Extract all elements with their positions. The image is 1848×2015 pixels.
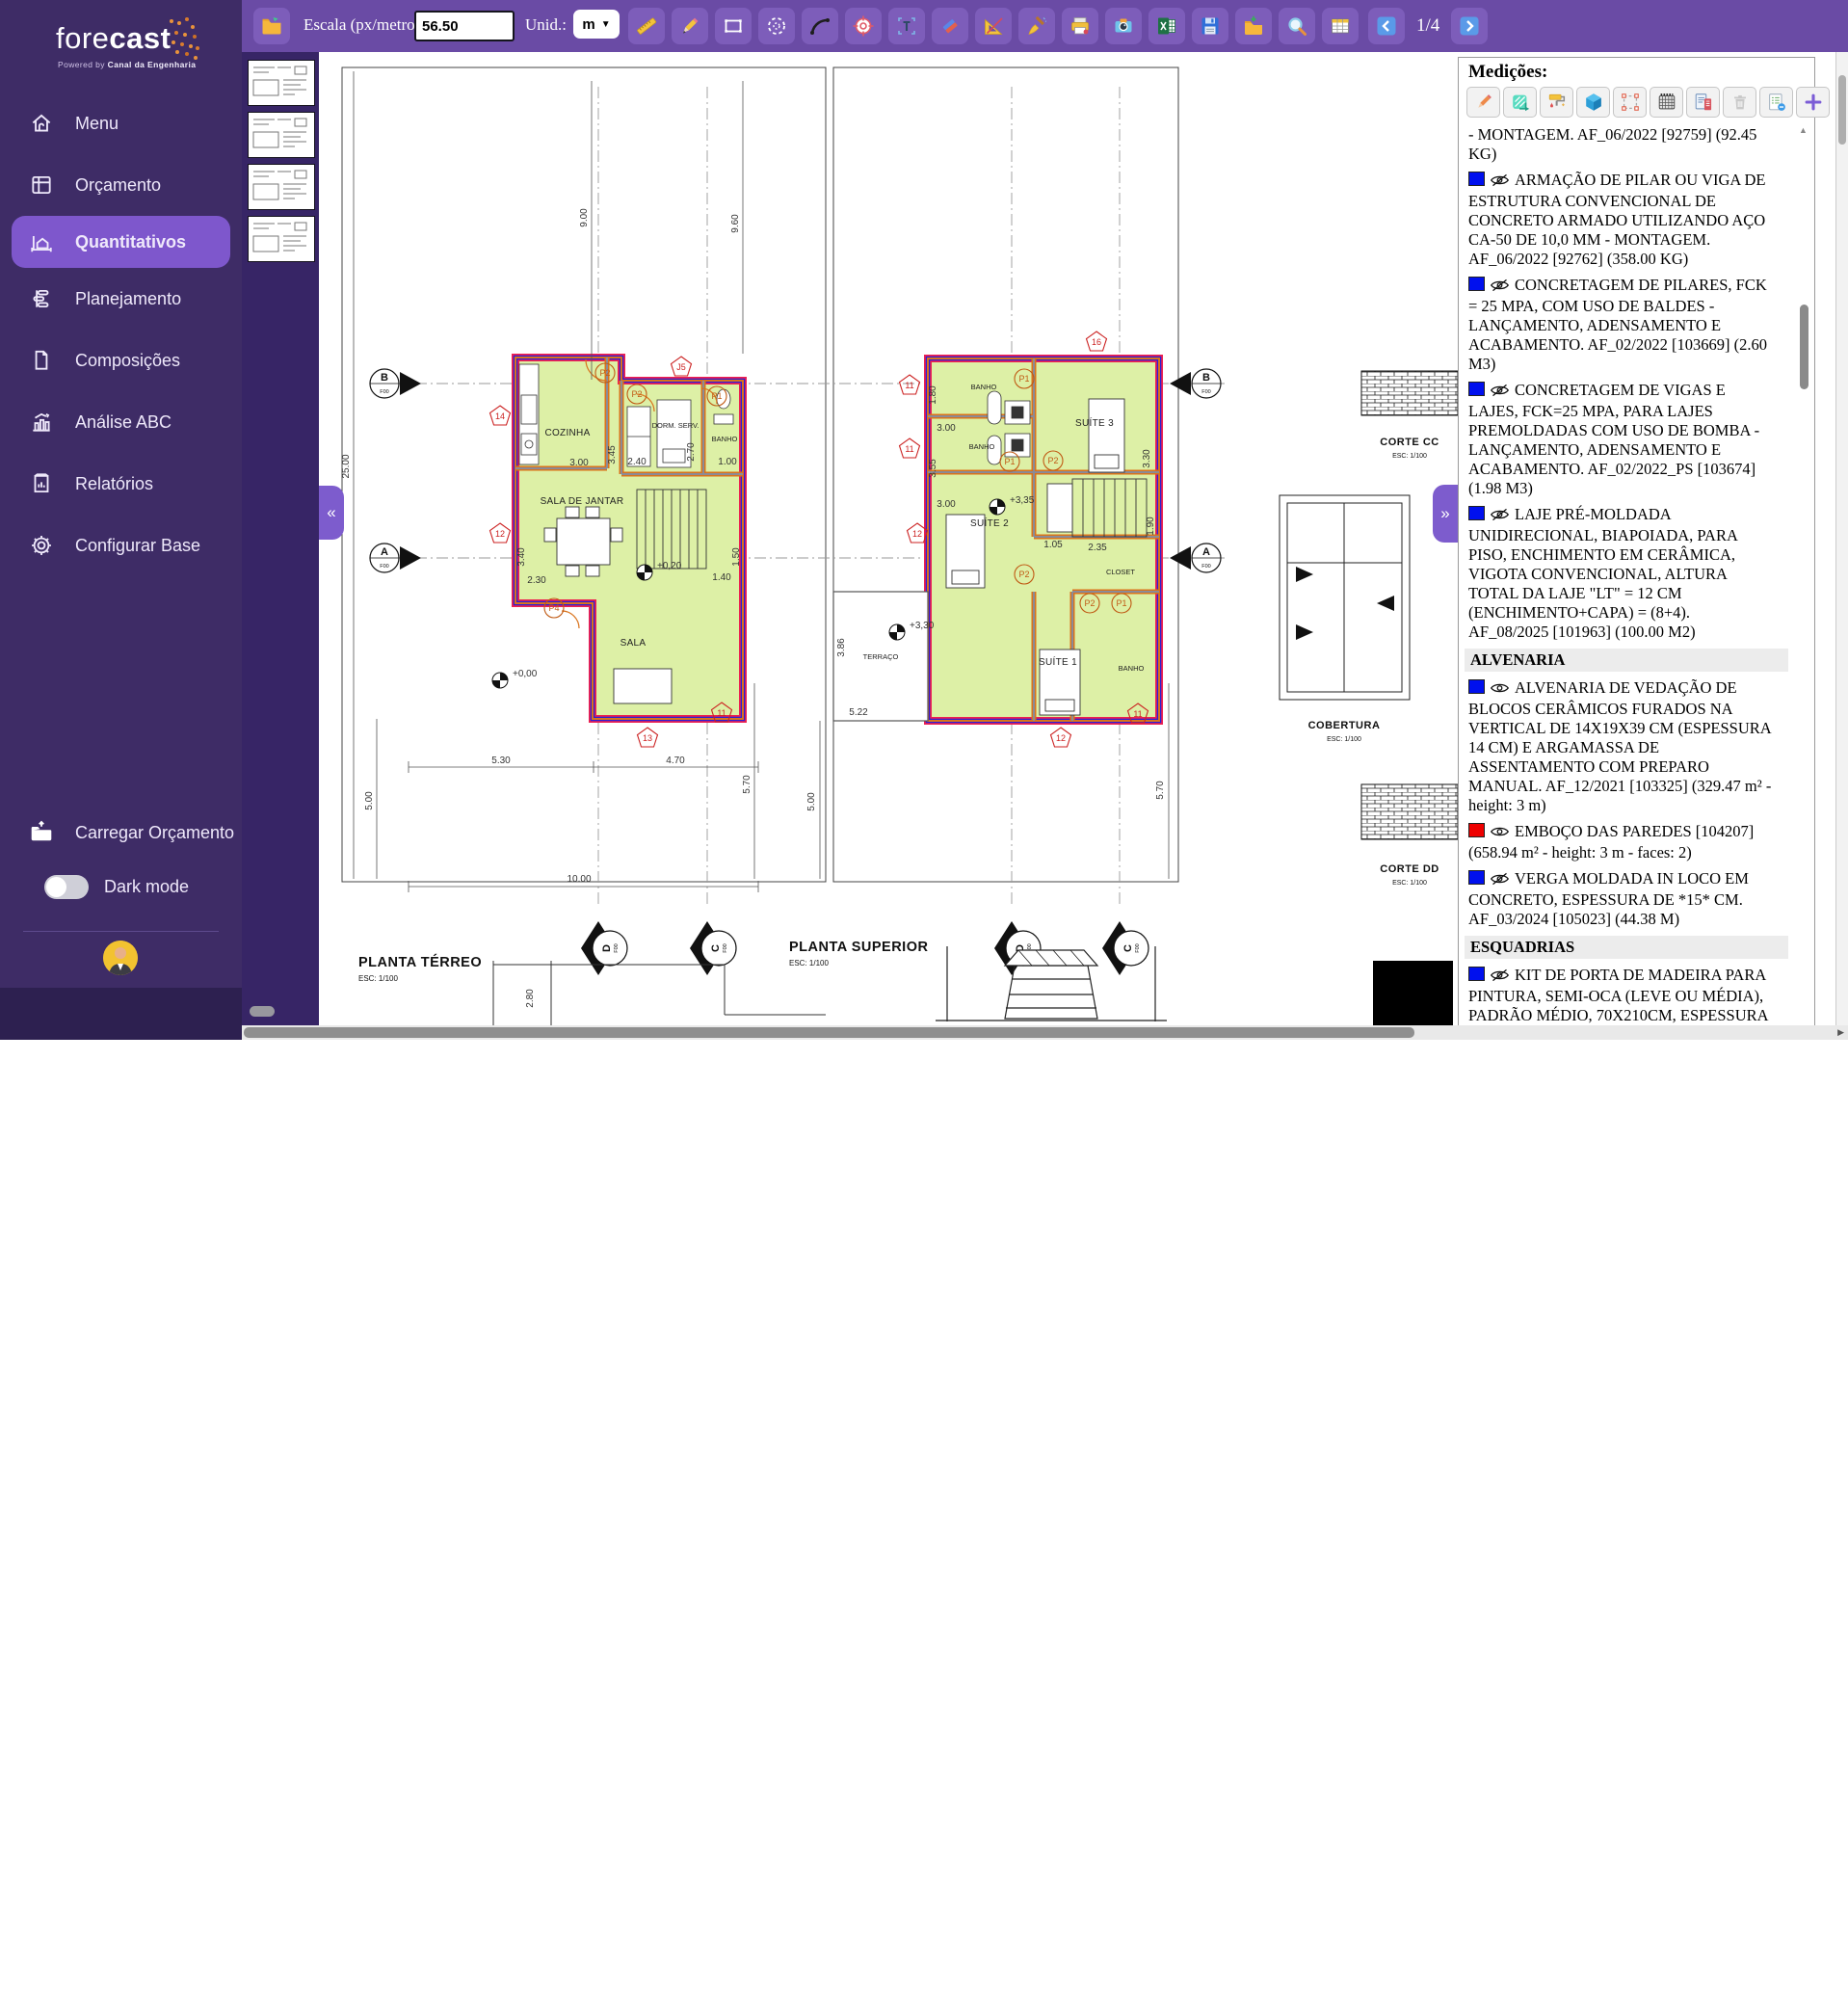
room-label: BANHO bbox=[712, 435, 738, 443]
logo-dots-decoration bbox=[170, 19, 173, 23]
sidebar-item-or-amento[interactable]: Orçamento bbox=[0, 154, 242, 216]
collapse-panel-button[interactable]: » bbox=[1433, 485, 1458, 543]
sidebar-item-label: Composições bbox=[75, 351, 180, 371]
rect-select-button[interactable] bbox=[715, 8, 752, 44]
window-tag: J5 bbox=[676, 362, 686, 372]
dim-label: 5.70 bbox=[1155, 781, 1166, 800]
broom-icon bbox=[1025, 14, 1048, 38]
window-tag: 16 bbox=[1092, 337, 1101, 347]
page-thumbnail-4[interactable] bbox=[248, 216, 315, 262]
eye-visible-icon[interactable] bbox=[1490, 824, 1510, 843]
axis-label: D bbox=[601, 944, 613, 952]
panel-title: Medições: bbox=[1468, 62, 1547, 83]
measurement-color-chip bbox=[1468, 382, 1485, 396]
dim-label: 3.00 bbox=[937, 423, 956, 434]
save-button[interactable] bbox=[1192, 8, 1228, 44]
black-block bbox=[1373, 961, 1453, 1025]
avatar-image bbox=[103, 941, 138, 975]
printer-icon bbox=[1069, 14, 1092, 38]
trash-icon bbox=[1729, 92, 1751, 113]
measurement-item[interactable]: EMBOÇO DAS PAREDES [104207] (658.94 m² -… bbox=[1468, 822, 1773, 862]
broom-button[interactable] bbox=[1018, 8, 1055, 44]
axis-sublabel: F00 bbox=[380, 389, 388, 395]
sidebar-item-label: Orçamento bbox=[75, 175, 161, 196]
window-tag: 11 bbox=[717, 708, 726, 718]
axis-label: B bbox=[1202, 372, 1210, 384]
level-label: +0,20 bbox=[657, 561, 682, 571]
measurement-color-chip bbox=[1468, 172, 1485, 186]
axis-sublabel: F00 bbox=[1201, 564, 1210, 570]
measurement-text: LAJE PRÉ-MOLDADA UNIDIRECIONAL, BIAPOIAD… bbox=[1468, 505, 1737, 641]
toolbar-tools bbox=[628, 0, 1359, 44]
dim-label: 5.22 bbox=[849, 707, 868, 718]
arrow-right-icon bbox=[1458, 14, 1481, 38]
page-navigation: 1/4 bbox=[1368, 0, 1488, 44]
pencil-button[interactable] bbox=[672, 8, 708, 44]
measurement-text: CONCRETAGEM DE VIGAS E LAJES, FCK=25 MPA… bbox=[1468, 381, 1759, 497]
ruler-icon bbox=[635, 14, 658, 38]
dim-label: 1.40 bbox=[712, 572, 731, 583]
measurement-color-chip bbox=[1468, 679, 1485, 694]
measurement-color-chip bbox=[1468, 823, 1485, 837]
compositions-icon bbox=[29, 348, 54, 373]
window-tag: 11 bbox=[905, 381, 913, 390]
sidebar-load-budget-container: Carregar Orçamento bbox=[0, 802, 242, 863]
scrollbar-thumb[interactable] bbox=[1800, 305, 1808, 389]
table-button[interactable] bbox=[1322, 8, 1359, 44]
door-tag: P2 bbox=[1018, 570, 1029, 579]
planning-icon bbox=[29, 286, 54, 311]
window-tag: 12 bbox=[495, 529, 505, 539]
plan-scale: ESC: 1/100 bbox=[358, 974, 398, 983]
user-avatar[interactable] bbox=[103, 941, 138, 975]
unit-value: m bbox=[582, 16, 594, 33]
axis-label: A bbox=[1202, 546, 1210, 558]
add-button[interactable] bbox=[1796, 87, 1830, 118]
canvas-sliver bbox=[1815, 57, 1835, 1025]
measurement-color-chip bbox=[1468, 870, 1485, 885]
dim-label: 1.00 bbox=[718, 457, 737, 467]
area-button[interactable] bbox=[1503, 87, 1537, 118]
dark-mode-toggle[interactable] bbox=[44, 875, 89, 899]
window-tag: 12 bbox=[1056, 733, 1066, 743]
scale-label: Escala (px/metro): bbox=[304, 15, 425, 35]
printer-button[interactable] bbox=[1062, 8, 1098, 44]
dim-label: 2.30 bbox=[527, 575, 546, 586]
measurement-item[interactable]: LAJE PRÉ-MOLDADA UNIDIRECIONAL, BIAPOIAD… bbox=[1468, 505, 1773, 642]
room-label: SUÍTE 1 bbox=[1039, 655, 1077, 668]
room-label: SALA bbox=[620, 638, 647, 649]
measurement-item[interactable]: CONCRETAGEM DE PILARES, FCK = 25 MPA, CO… bbox=[1468, 276, 1773, 374]
dark-mode-label: Dark mode bbox=[104, 877, 189, 897]
measurement-text: ARMAÇÃO DE PILAR OU VIGA DE ESTRUTURA CO… bbox=[1468, 171, 1766, 268]
axis-sublabel: F00 bbox=[723, 943, 728, 952]
plan-scale: ESC: 1/100 bbox=[789, 959, 829, 968]
detail-title: COBERTURA bbox=[1308, 720, 1381, 731]
dim-label: 25.00 bbox=[341, 454, 352, 478]
dim-label: 3.86 bbox=[836, 638, 847, 657]
collapse-sidebar-icon[interactable]: ‹ bbox=[21, 1988, 29, 2015]
measurement-text: EMBOÇO DAS PAREDES [104207] (658.94 m² -… bbox=[1468, 822, 1754, 862]
set-square-button[interactable] bbox=[975, 8, 1012, 44]
axis-sublabel: F00 bbox=[1201, 389, 1210, 395]
page-thumbnails-strip bbox=[242, 52, 319, 1025]
pencil-icon bbox=[678, 14, 701, 38]
door-tag: P1 bbox=[1116, 598, 1126, 608]
scroll-right-icon[interactable]: ▶ bbox=[1837, 1027, 1844, 1038]
axis-sublabel: F00 bbox=[614, 943, 620, 952]
volume-button[interactable] bbox=[1576, 87, 1610, 118]
sidebar-item-an-lise-abc[interactable]: Análise ABC bbox=[0, 391, 242, 453]
text-tool-button[interactable] bbox=[888, 8, 925, 44]
scrollbar-thumb[interactable] bbox=[1838, 75, 1846, 145]
axis-sublabel: F00 bbox=[1135, 943, 1141, 952]
unit-label: Unid.: bbox=[525, 15, 567, 35]
curve-icon bbox=[808, 14, 832, 38]
dim-label: 2.40 bbox=[627, 457, 647, 467]
ruler-button[interactable] bbox=[628, 8, 665, 44]
measurement-color-chip bbox=[1468, 967, 1485, 981]
dim-label: 5.00 bbox=[806, 792, 817, 811]
sidebar-item-quantitativos[interactable]: Quantitativos bbox=[12, 216, 230, 268]
measurement-item[interactable]: ALVENARIA DE VEDAÇÃO DE BLOCOS CERÂMICOS… bbox=[1468, 678, 1773, 815]
room-label: TERRAÇO bbox=[863, 652, 899, 661]
eye-hidden-icon[interactable] bbox=[1490, 172, 1510, 192]
window-tag: 11 bbox=[905, 444, 913, 454]
sidebar-bottom-bar: ‹ bbox=[0, 988, 242, 1040]
axis-label: C bbox=[1122, 944, 1134, 952]
door-tag: P1 bbox=[1018, 374, 1029, 384]
scroll-up-icon[interactable]: ▲ bbox=[1799, 125, 1808, 135]
measurement-item[interactable]: CONCRETAGEM DE VIGAS E LAJES, FCK=25 MPA… bbox=[1468, 381, 1773, 498]
zoom-icon bbox=[1285, 14, 1308, 38]
room-label: SUÍTE 2 bbox=[970, 517, 1009, 529]
room-label: SALA DE JANTAR bbox=[541, 496, 624, 507]
room-label: BANHO bbox=[1119, 664, 1145, 673]
dim-label: 3.45 bbox=[607, 445, 618, 464]
eye-hidden-icon[interactable] bbox=[1490, 871, 1510, 890]
sidebar-item-label: Relatórios bbox=[75, 474, 153, 494]
paint-roller-button[interactable] bbox=[1540, 87, 1573, 118]
load-budget-button[interactable]: Carregar Orçamento bbox=[0, 802, 242, 863]
plan-title: PLANTA TÉRREO bbox=[358, 954, 482, 970]
count-grid-icon bbox=[1656, 92, 1677, 113]
eraser-icon bbox=[938, 14, 962, 38]
camera-button[interactable] bbox=[1105, 8, 1142, 44]
select-region-button[interactable] bbox=[1613, 87, 1647, 118]
ellipse-select-button[interactable] bbox=[758, 8, 795, 44]
plan-title: PLANTA SUPERIOR bbox=[789, 940, 928, 955]
budget-icon bbox=[29, 172, 54, 198]
room-label: CLOSET bbox=[1106, 568, 1135, 576]
axis-sublabel: F00 bbox=[380, 564, 388, 570]
logo-tagline: Powered by Canal da Engenharia bbox=[58, 60, 196, 69]
axis-label: A bbox=[381, 546, 388, 558]
import-folder-button[interactable] bbox=[1235, 8, 1272, 44]
detail-scale: ESC: 1/100 bbox=[1327, 736, 1361, 743]
dim-label: 2.80 bbox=[525, 989, 536, 1008]
rect-select-icon bbox=[722, 14, 745, 38]
dim-label: 5.70 bbox=[742, 775, 752, 794]
excel-export-icon bbox=[1155, 14, 1178, 38]
page-thumbnail-3[interactable] bbox=[248, 164, 315, 210]
axis-label: B bbox=[381, 372, 388, 384]
room-label: BANHO bbox=[969, 442, 995, 451]
list-scrollbar[interactable]: ▲ ▼ bbox=[1798, 125, 1811, 1035]
excel-export-button[interactable] bbox=[1148, 8, 1185, 44]
room-label: BANHO bbox=[971, 383, 997, 391]
door-tag: P2 bbox=[631, 389, 642, 399]
target-button[interactable] bbox=[845, 8, 882, 44]
sidebar-item-composi-es[interactable]: Composições bbox=[0, 330, 242, 391]
camera-icon bbox=[1112, 14, 1135, 38]
top-toolbar: Escala (px/metro): Unid.: m ▼ 1/4 bbox=[242, 0, 1848, 52]
canvas-pill bbox=[250, 1006, 275, 1017]
measurement-color-chip bbox=[1468, 506, 1485, 520]
window-tag: 13 bbox=[643, 733, 652, 743]
eye-hidden-icon[interactable] bbox=[1490, 383, 1510, 402]
measurement-text: VERGA MOLDADA IN LOCO EM CONCRETO, ESPES… bbox=[1468, 869, 1749, 928]
sidebar-item-configurar-base[interactable]: Configurar Base bbox=[0, 515, 242, 576]
room-label: DORM. SERV. bbox=[652, 421, 700, 430]
door-tag: P4 bbox=[548, 603, 559, 613]
window-tag: 12 bbox=[912, 529, 922, 539]
page-thumbnail-1[interactable] bbox=[248, 60, 315, 106]
add-icon bbox=[1803, 92, 1824, 113]
dim-label: 1.05 bbox=[1043, 540, 1063, 550]
app-logo: forecast bbox=[56, 21, 171, 56]
select-region-icon bbox=[1620, 92, 1641, 113]
sidebar-item-menu[interactable]: Menu bbox=[0, 93, 242, 154]
edit-icon bbox=[1473, 92, 1494, 113]
dim-label: 10.00 bbox=[567, 874, 591, 885]
home-icon bbox=[29, 111, 54, 136]
measurement-color-chip bbox=[1468, 277, 1485, 291]
level-label: +0,00 bbox=[513, 669, 538, 679]
detail-scale: ESC: 1/100 bbox=[1392, 880, 1427, 887]
open-folder-button[interactable] bbox=[253, 8, 290, 44]
level-label: +3,35 bbox=[1010, 495, 1035, 506]
page-indicator: 1/4 bbox=[1413, 15, 1442, 37]
trash-button[interactable] bbox=[1723, 87, 1756, 118]
dim-label: 3.00 bbox=[937, 499, 956, 510]
measurement-section-header: ESQUADRIAS bbox=[1465, 936, 1788, 959]
eraser-button[interactable] bbox=[932, 8, 968, 44]
measurements-panel: Medições: - MONTAGEM. AF_06/2022 [92759]… bbox=[1458, 57, 1815, 1040]
canvas-horizontal-scrollbar[interactable]: ▶ bbox=[242, 1025, 1848, 1040]
curve-button[interactable] bbox=[802, 8, 838, 44]
dim-label: 4.70 bbox=[666, 756, 685, 766]
open-folder-icon bbox=[260, 14, 283, 38]
measurement-list: - MONTAGEM. AF_06/2022 [92759] (92.45 KG… bbox=[1459, 121, 1798, 1035]
quantities-icon bbox=[29, 229, 54, 254]
report-export-icon bbox=[1693, 92, 1714, 113]
arrow-left-icon bbox=[1375, 14, 1398, 38]
sidebar-item-relat-rios[interactable]: Relatórios bbox=[0, 453, 242, 515]
sidebar-item-label: Menu bbox=[75, 114, 119, 134]
axis-label: C bbox=[710, 944, 722, 952]
upload-folder-icon bbox=[29, 820, 54, 845]
detail-scale: ESC: 1/100 bbox=[1392, 453, 1427, 460]
door-tag: P2 bbox=[599, 368, 610, 378]
abc-analysis-icon bbox=[29, 410, 54, 435]
table-icon bbox=[1329, 14, 1352, 38]
sidebar-item-label: Configurar Base bbox=[75, 536, 200, 556]
measurement-section-header: ALVENARIA bbox=[1465, 649, 1788, 672]
set-square-icon bbox=[982, 14, 1005, 38]
dim-label: 9.00 bbox=[579, 208, 590, 227]
door-tag: P1 bbox=[1004, 457, 1015, 466]
eye-visible-icon[interactable] bbox=[1490, 680, 1510, 700]
text-tool-icon bbox=[895, 14, 918, 38]
dim-label: 3.40 bbox=[516, 547, 527, 567]
eye-hidden-icon[interactable] bbox=[1490, 278, 1510, 297]
count-grid-button[interactable] bbox=[1650, 87, 1683, 118]
sidebar-item-label: Análise ABC bbox=[75, 412, 172, 433]
prev-page-button[interactable] bbox=[1368, 8, 1405, 44]
detail-title: CORTE DD bbox=[1380, 863, 1439, 875]
import-folder-icon bbox=[1242, 14, 1265, 38]
dim-label: 5.00 bbox=[364, 791, 375, 810]
eye-hidden-icon[interactable] bbox=[1490, 507, 1510, 526]
toggle-knob bbox=[46, 877, 66, 897]
sidebar: forecast Powered by Canal da Engenharia … bbox=[0, 0, 242, 1040]
measurement-text: ALVENARIA DE VEDAÇÃO DE BLOCOS CERÂMICOS… bbox=[1468, 678, 1771, 814]
sidebar-nav: MenuOrçamentoQuantitativosPlanejamentoCo… bbox=[0, 93, 242, 576]
save-icon bbox=[1199, 14, 1222, 38]
volume-icon bbox=[1583, 92, 1604, 113]
dim-label: 1.90 bbox=[1146, 517, 1156, 536]
next-page-button[interactable] bbox=[1451, 8, 1488, 44]
dim-label: 9.60 bbox=[730, 214, 741, 233]
door-tag: P2 bbox=[1047, 456, 1058, 465]
chevron-down-icon: ▼ bbox=[601, 19, 611, 30]
list-badge-icon bbox=[1766, 92, 1787, 113]
edit-button[interactable] bbox=[1466, 87, 1500, 118]
list-badge-button[interactable] bbox=[1759, 87, 1793, 118]
page-vertical-scrollbar[interactable] bbox=[1835, 52, 1848, 1025]
dark-mode-row: Dark mode bbox=[44, 875, 189, 899]
dim-label: 5.30 bbox=[491, 756, 511, 766]
report-export-button[interactable] bbox=[1686, 87, 1720, 118]
paint-roller-icon bbox=[1546, 92, 1568, 113]
ellipse-select-icon bbox=[765, 14, 788, 38]
collapse-thumbnails-button[interactable]: « bbox=[319, 486, 344, 540]
area-icon bbox=[1510, 92, 1531, 113]
scale-input[interactable] bbox=[414, 11, 515, 41]
dim-label: 2.35 bbox=[1088, 543, 1107, 553]
measurement-item[interactable]: - MONTAGEM. AF_06/2022 [92759] (92.45 KG… bbox=[1468, 125, 1773, 164]
measurement-item[interactable]: ARMAÇÃO DE PILAR OU VIGA DE ESTRUTURA CO… bbox=[1468, 171, 1773, 269]
level-label: +3,30 bbox=[910, 621, 935, 631]
measurement-item[interactable]: VERGA MOLDADA IN LOCO EM CONCRETO, ESPES… bbox=[1468, 869, 1773, 929]
sidebar-item-label: Quantitativos bbox=[75, 232, 186, 252]
gear-icon bbox=[29, 533, 54, 558]
sidebar-item-planejamento[interactable]: Planejamento bbox=[0, 268, 242, 330]
detail-title: CORTE CC bbox=[1380, 437, 1439, 448]
room-label: SUÍTE 3 bbox=[1075, 416, 1114, 429]
reports-icon bbox=[29, 471, 54, 496]
dim-label: 1.80 bbox=[928, 385, 938, 405]
sidebar-divider bbox=[23, 931, 219, 932]
dim-label: 3.00 bbox=[569, 458, 589, 468]
scrollbar-thumb[interactable] bbox=[244, 1027, 1414, 1038]
dim-label: 3.30 bbox=[1142, 449, 1152, 468]
measurement-text: - MONTAGEM. AF_06/2022 [92759] (92.45 KG… bbox=[1468, 125, 1756, 163]
dim-label: 2.70 bbox=[686, 442, 697, 462]
sidebar-item-label: Planejamento bbox=[75, 289, 181, 309]
measurement-text: CONCRETAGEM DE PILARES, FCK = 25 MPA, CO… bbox=[1468, 276, 1767, 373]
room-label: COZINHA bbox=[544, 428, 590, 438]
eye-hidden-icon[interactable] bbox=[1490, 968, 1510, 987]
door-tag: P1 bbox=[711, 391, 722, 401]
unit-select[interactable]: m ▼ bbox=[573, 10, 620, 39]
door-tag: P2 bbox=[1084, 598, 1095, 608]
load-budget-label: Carregar Orçamento bbox=[75, 823, 234, 843]
measurement-tools bbox=[1466, 87, 1830, 118]
dim-label: 3.55 bbox=[928, 459, 938, 478]
page-thumbnail-2[interactable] bbox=[248, 112, 315, 158]
zoom-button[interactable] bbox=[1279, 8, 1315, 44]
dim-label: 1.50 bbox=[731, 547, 742, 567]
target-icon bbox=[852, 14, 875, 38]
window-tag: 11 bbox=[1133, 709, 1142, 719]
window-tag: 14 bbox=[495, 411, 505, 421]
